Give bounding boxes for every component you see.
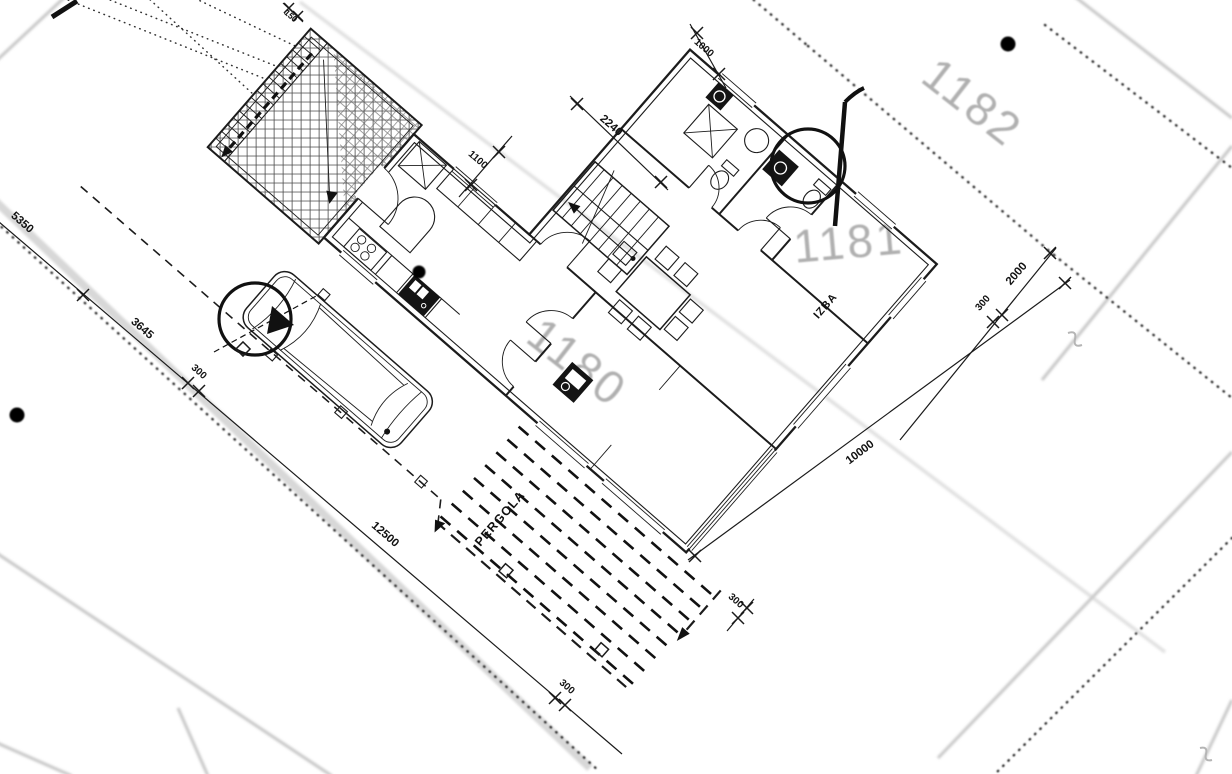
parcel-line-corner-br	[1196, 700, 1232, 774]
parcel-line-bottom-left-3	[0, 742, 72, 774]
section-hook-right	[845, 88, 864, 102]
dim-label-1100: 1100	[466, 149, 490, 172]
utility-line-4	[190, 0, 312, 54]
car-mirror-left	[318, 289, 330, 301]
boundary-right	[1054, 255, 1232, 398]
pergola-post-1	[499, 564, 513, 578]
parcel-line-bottom-right-1	[938, 452, 1232, 758]
utility-line-1	[58, 0, 298, 92]
car-windshield	[280, 304, 326, 355]
section-marker-left	[214, 283, 318, 356]
parcel-line-bottom-left-1	[0, 552, 332, 774]
pergola-post-2	[594, 643, 608, 657]
dim-label-300-right: 300	[973, 293, 993, 313]
survey-dot-left	[10, 408, 25, 423]
parcel-number-1182: 1182	[913, 48, 1032, 157]
pergola-south-edge	[436, 522, 626, 687]
dim-label-150: 150	[282, 7, 299, 24]
utility-bold-mark	[52, 1, 77, 17]
parcel-line-top-left	[0, 0, 66, 62]
site-plan-canvas: 1182 1181 1180	[0, 0, 1232, 774]
parcel-line-top-right	[1074, 0, 1232, 118]
car-rear-window	[367, 379, 408, 425]
pergola-east-edge	[685, 590, 721, 632]
survey-dot-1182	[1001, 37, 1016, 52]
survey-dot-house	[413, 266, 426, 279]
boundary-top-a	[748, 0, 808, 46]
parcel-line-bottom-left-2	[178, 708, 208, 774]
dim-label-2000: 2000	[1004, 260, 1030, 287]
parcel-line-right	[1042, 146, 1232, 380]
utility-line-2	[100, 0, 306, 78]
dim-label-12500: 12500	[369, 520, 401, 550]
site-plan-page: 1182 1181 1180	[0, 0, 1232, 774]
dim-label-300-pergola: 300	[726, 591, 746, 611]
boundary-bottom-right	[993, 538, 1232, 774]
